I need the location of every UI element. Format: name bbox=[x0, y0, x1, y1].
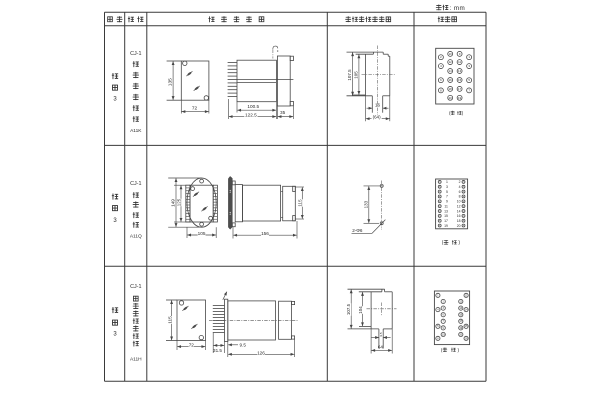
svg-text:107.5: 107.5 bbox=[347, 69, 352, 81]
svg-text:72: 72 bbox=[192, 106, 198, 112]
svg-text:CJ-1: CJ-1 bbox=[130, 181, 141, 187]
svg-text:133: 133 bbox=[364, 200, 369, 208]
svg-text:(: ( bbox=[442, 240, 444, 246]
svg-text:20: 20 bbox=[457, 224, 461, 228]
svg-text:1: 1 bbox=[446, 180, 448, 184]
svg-text:4: 4 bbox=[459, 185, 461, 189]
svg-text:16: 16 bbox=[449, 78, 453, 82]
svg-text:14: 14 bbox=[457, 209, 461, 213]
svg-text:4: 4 bbox=[440, 64, 442, 68]
svg-text:): ) bbox=[462, 111, 464, 116]
svg-text:6: 6 bbox=[459, 190, 461, 194]
svg-text:9: 9 bbox=[446, 200, 448, 204]
svg-text:15: 15 bbox=[458, 78, 462, 82]
svg-text:135: 135 bbox=[168, 78, 174, 86]
svg-text:107.5: 107.5 bbox=[346, 303, 351, 315]
svg-text:156: 156 bbox=[261, 231, 269, 236]
svg-text:17: 17 bbox=[458, 87, 462, 91]
svg-text:7: 7 bbox=[468, 88, 470, 92]
svg-text:13: 13 bbox=[458, 69, 462, 73]
svg-text:16: 16 bbox=[375, 103, 381, 108]
svg-text:CJ-1: CJ-1 bbox=[130, 51, 141, 57]
svg-text:2: 2 bbox=[459, 180, 461, 184]
svg-text:9.5: 9.5 bbox=[240, 342, 247, 347]
svg-text:19: 19 bbox=[458, 96, 462, 100]
svg-text:3: 3 bbox=[113, 218, 117, 224]
svg-text:6: 6 bbox=[440, 78, 442, 82]
svg-text:31.5: 31.5 bbox=[213, 348, 222, 353]
svg-text:1: 1 bbox=[468, 55, 470, 59]
svg-text:115: 115 bbox=[168, 316, 173, 324]
svg-text:8: 8 bbox=[440, 88, 442, 92]
svg-text:18: 18 bbox=[449, 87, 453, 91]
svg-text:A11K: A11K bbox=[130, 128, 142, 134]
svg-text:2-Φ6: 2-Φ6 bbox=[352, 228, 363, 233]
svg-text:A11Q: A11Q bbox=[130, 233, 142, 239]
svg-text:64: 64 bbox=[378, 345, 384, 350]
svg-text:122.5: 122.5 bbox=[245, 113, 257, 118]
svg-text:): ) bbox=[457, 348, 459, 354]
svg-text:149: 149 bbox=[170, 199, 175, 207]
svg-text:9: 9 bbox=[459, 52, 461, 56]
svg-text:7: 7 bbox=[446, 195, 448, 199]
svg-text:100.5: 100.5 bbox=[247, 104, 259, 109]
svg-text:72: 72 bbox=[189, 343, 195, 348]
svg-text:): ) bbox=[458, 240, 460, 246]
svg-text:(: ( bbox=[441, 348, 443, 354]
svg-text:3: 3 bbox=[113, 332, 117, 338]
svg-text:A11H: A11H bbox=[130, 357, 142, 363]
svg-text:125: 125 bbox=[176, 198, 181, 206]
svg-text:12: 12 bbox=[449, 60, 453, 64]
svg-text:18: 18 bbox=[457, 219, 461, 223]
svg-text:5: 5 bbox=[468, 78, 470, 82]
svg-text:: mm: : mm bbox=[450, 5, 466, 12]
svg-text:CJ-1: CJ-1 bbox=[130, 284, 141, 290]
svg-text:14: 14 bbox=[449, 69, 453, 73]
svg-text:104: 104 bbox=[358, 306, 363, 314]
svg-text:10: 10 bbox=[449, 52, 453, 56]
svg-text:13: 13 bbox=[444, 209, 448, 213]
svg-text:115: 115 bbox=[298, 199, 303, 207]
svg-text:8: 8 bbox=[459, 195, 461, 199]
svg-text:35: 35 bbox=[280, 110, 286, 115]
svg-text:2: 2 bbox=[440, 55, 442, 59]
svg-text:16: 16 bbox=[457, 214, 461, 218]
svg-text:15: 15 bbox=[444, 214, 448, 218]
svg-text:126: 126 bbox=[257, 350, 265, 355]
svg-text:(64): (64) bbox=[373, 115, 382, 120]
svg-text:3: 3 bbox=[113, 97, 117, 103]
svg-text:17: 17 bbox=[444, 219, 448, 223]
svg-text:3: 3 bbox=[446, 185, 448, 189]
svg-text:19: 19 bbox=[444, 224, 448, 228]
svg-text:5: 5 bbox=[446, 190, 448, 194]
svg-text:11: 11 bbox=[458, 60, 461, 64]
svg-text:9.5: 9.5 bbox=[379, 332, 383, 337]
svg-text:105: 105 bbox=[354, 71, 359, 79]
svg-text:12: 12 bbox=[457, 204, 461, 208]
svg-text:11: 11 bbox=[444, 204, 448, 208]
svg-text:3: 3 bbox=[468, 64, 470, 68]
svg-text:105: 105 bbox=[198, 231, 206, 236]
svg-text:20: 20 bbox=[449, 96, 453, 100]
svg-text:10: 10 bbox=[457, 200, 461, 204]
